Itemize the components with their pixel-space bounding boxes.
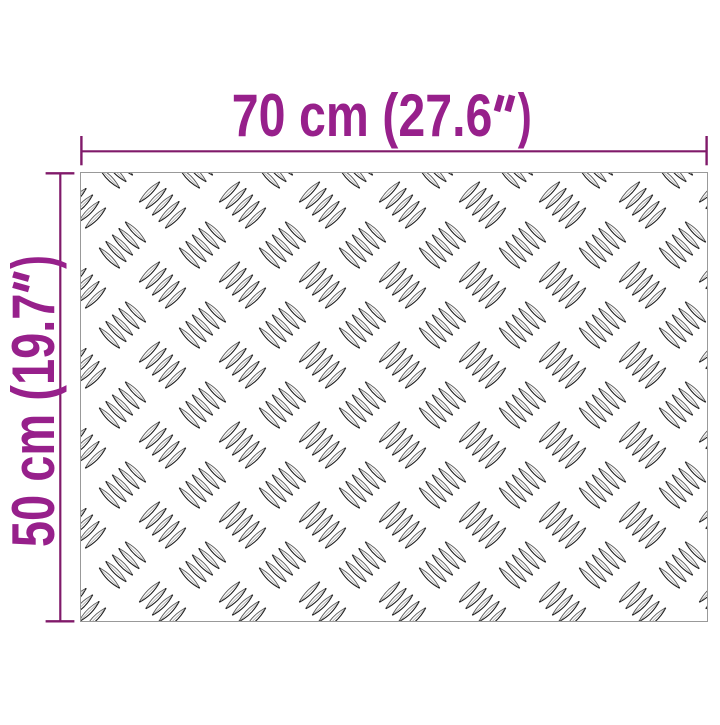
- svg-text:): ): [0, 255, 67, 269]
- svg-text:): ): [518, 82, 532, 149]
- svg-text:50 cm (19.7: 50 cm (19.7: [0, 294, 67, 548]
- svg-text:70 cm (27.6: 70 cm (27.6: [232, 82, 493, 149]
